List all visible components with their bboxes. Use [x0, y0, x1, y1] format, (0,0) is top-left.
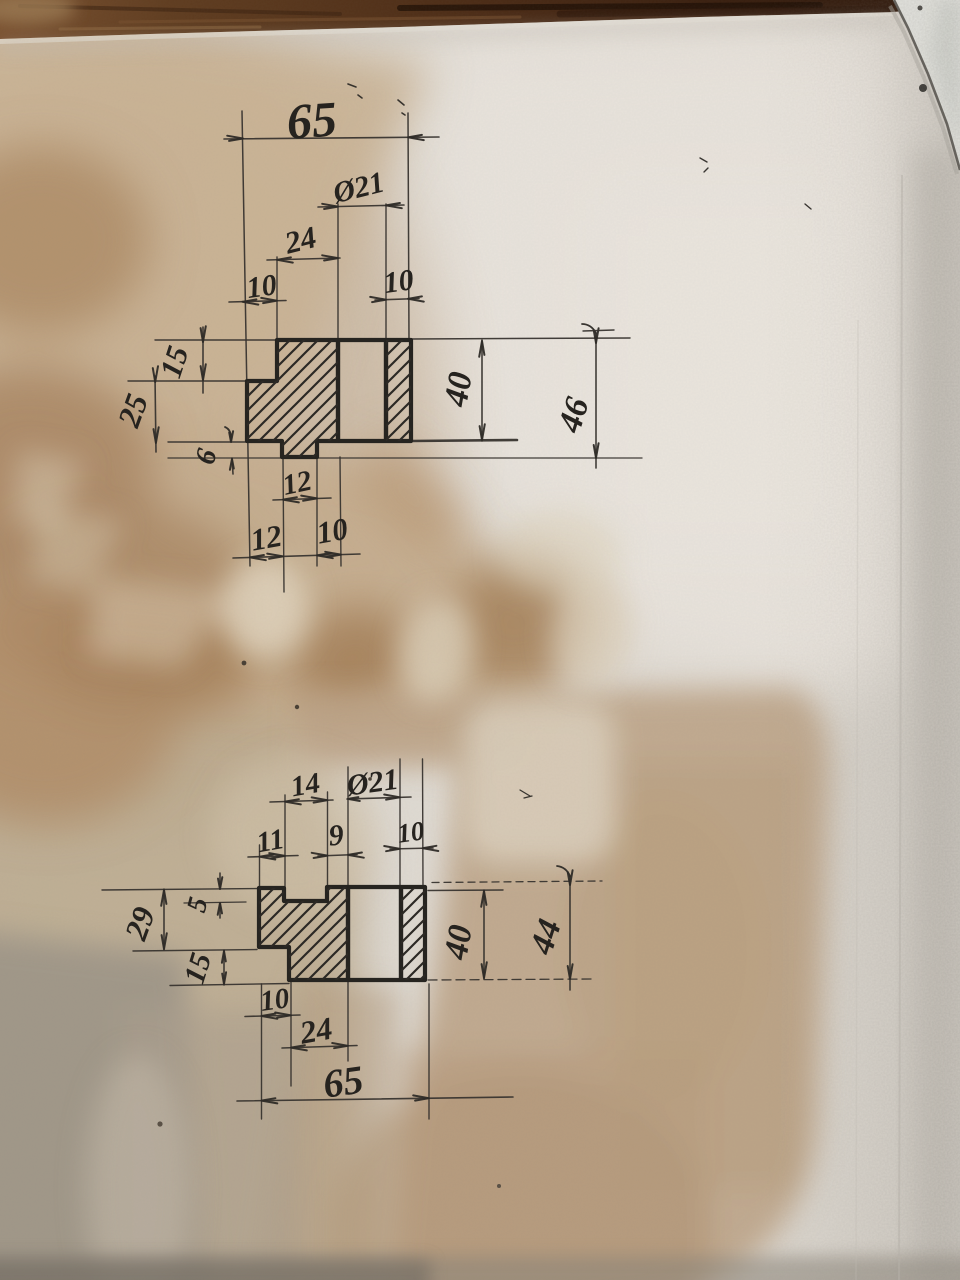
svg-text:14: 14 — [288, 767, 322, 804]
svg-text:10: 10 — [395, 815, 426, 849]
svg-text:10: 10 — [245, 268, 279, 305]
svg-text:10: 10 — [314, 511, 351, 551]
svg-text:24: 24 — [296, 1010, 335, 1051]
svg-text:10: 10 — [258, 982, 291, 1018]
svg-text:11: 11 — [254, 823, 287, 859]
svg-text:40: 40 — [437, 369, 480, 410]
svg-text:9: 9 — [327, 818, 345, 852]
svg-text:12: 12 — [248, 518, 285, 558]
svg-text:10: 10 — [382, 263, 416, 300]
svg-text:65: 65 — [320, 1057, 366, 1107]
svg-text:65: 65 — [285, 90, 339, 149]
svg-text:40: 40 — [437, 922, 480, 963]
